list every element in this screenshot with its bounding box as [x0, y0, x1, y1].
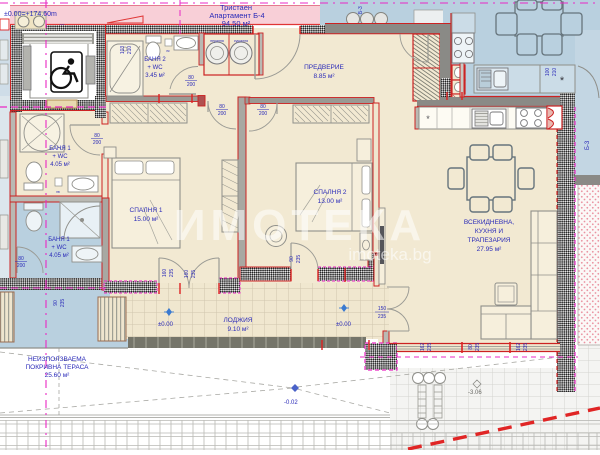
svg-text:160: 160 [162, 269, 168, 278]
svg-text:ВСЕКИДНЕВНА,: ВСЕКИДНЕВНА, [464, 219, 514, 226]
svg-text:235: 235 [378, 314, 387, 320]
svg-text:+ WC: + WC [51, 245, 67, 251]
svg-text:-0.02: -0.02 [284, 400, 298, 406]
svg-text:80: 80 [18, 256, 24, 262]
svg-text:БАНЯ 1: БАНЯ 1 [49, 146, 71, 152]
svg-text:80: 80 [468, 344, 474, 350]
svg-text:80: 80 [188, 75, 194, 81]
svg-text:200: 200 [187, 82, 196, 88]
svg-text:162: 162 [420, 343, 426, 352]
svg-text:ПОКРИВНА ТЕРАСА: ПОКРИВНА ТЕРАСА [26, 364, 90, 371]
svg-text:235: 235 [523, 343, 529, 352]
svg-text:4.05 м²: 4.05 м² [50, 162, 69, 168]
svg-text:94.50 м²: 94.50 м² [222, 19, 251, 28]
svg-text:СПАЛНЯ 1: СПАЛНЯ 1 [130, 207, 163, 214]
svg-text:160: 160 [184, 270, 190, 279]
svg-text:СПАЛНЯ 2: СПАЛНЯ 2 [314, 189, 347, 196]
svg-text:235: 235 [191, 270, 197, 279]
svg-text:-3.06: -3.06 [468, 390, 482, 396]
svg-text:Б-3: Б-3 [585, 140, 591, 150]
svg-text:200: 200 [259, 111, 268, 117]
svg-text:пералня: пералня [210, 39, 224, 43]
svg-text:ЛОДЖИЯ: ЛОДЖИЯ [224, 317, 253, 324]
svg-text:БАНЯ 1: БАНЯ 1 [48, 237, 70, 243]
svg-text:ИМОТЕКА: ИМОТЕКА [174, 201, 426, 250]
svg-text:200: 200 [93, 140, 102, 146]
svg-text:*: * [560, 75, 565, 87]
svg-text:ТРАПЕЗАРИЯ: ТРАПЕЗАРИЯ [468, 237, 511, 244]
svg-text:+ WC: + WC [52, 154, 68, 160]
svg-text:100: 100 [545, 68, 551, 77]
svg-text:210: 210 [552, 68, 558, 77]
svg-text:ПРЕДВЕРИЕ: ПРЕДВЕРИЕ [304, 64, 344, 71]
svg-text:БАНЯ 2: БАНЯ 2 [144, 57, 166, 63]
svg-text:КУХНЯ И: КУХНЯ И [475, 228, 504, 235]
svg-text:200: 200 [218, 111, 227, 117]
svg-text:пв: пв [56, 190, 60, 194]
svg-text:235: 235 [60, 299, 66, 308]
svg-text:сушилня: сушилня [234, 39, 248, 43]
svg-text:235: 235 [296, 255, 302, 264]
svg-text:3.45 м²: 3.45 м² [145, 73, 164, 79]
svg-text:НЕИЗПОЛЗВАЕМА: НЕИЗПОЛЗВАЕМА [28, 356, 87, 363]
svg-text:103: 103 [120, 46, 126, 55]
svg-text:235: 235 [427, 343, 433, 352]
svg-text:90: 90 [289, 256, 295, 262]
svg-text:27.95 м²: 27.95 м² [477, 246, 503, 253]
svg-text:±0.00=+174.60m: ±0.00=+174.60m [4, 11, 57, 18]
svg-text:Б-3: Б-3 [358, 6, 364, 14]
svg-text:90: 90 [53, 300, 59, 306]
svg-text:15.00 м²: 15.00 м² [134, 216, 160, 223]
svg-text:25.60 м²: 25.60 м² [45, 372, 71, 379]
svg-text:235: 235 [475, 343, 481, 352]
svg-text:235: 235 [169, 269, 175, 278]
svg-text:imoteka.bg: imoteka.bg [348, 245, 431, 264]
svg-text:*: * [426, 114, 430, 124]
svg-text:±0.00: ±0.00 [336, 322, 352, 328]
svg-text:210: 210 [127, 46, 133, 55]
svg-text:+ WC: + WC [147, 65, 163, 71]
svg-text:80: 80 [260, 104, 266, 110]
svg-text:4.05 м²: 4.05 м² [49, 253, 68, 259]
svg-text:8.85 м²: 8.85 м² [313, 73, 335, 80]
svg-text:162: 162 [516, 343, 522, 352]
svg-text:±0.00: ±0.00 [158, 322, 174, 328]
svg-text:9.10 м²: 9.10 м² [227, 326, 249, 333]
svg-text:80: 80 [94, 133, 100, 139]
svg-text:80: 80 [219, 104, 225, 110]
svg-text:200: 200 [17, 263, 26, 269]
svg-text:150: 150 [378, 306, 387, 312]
